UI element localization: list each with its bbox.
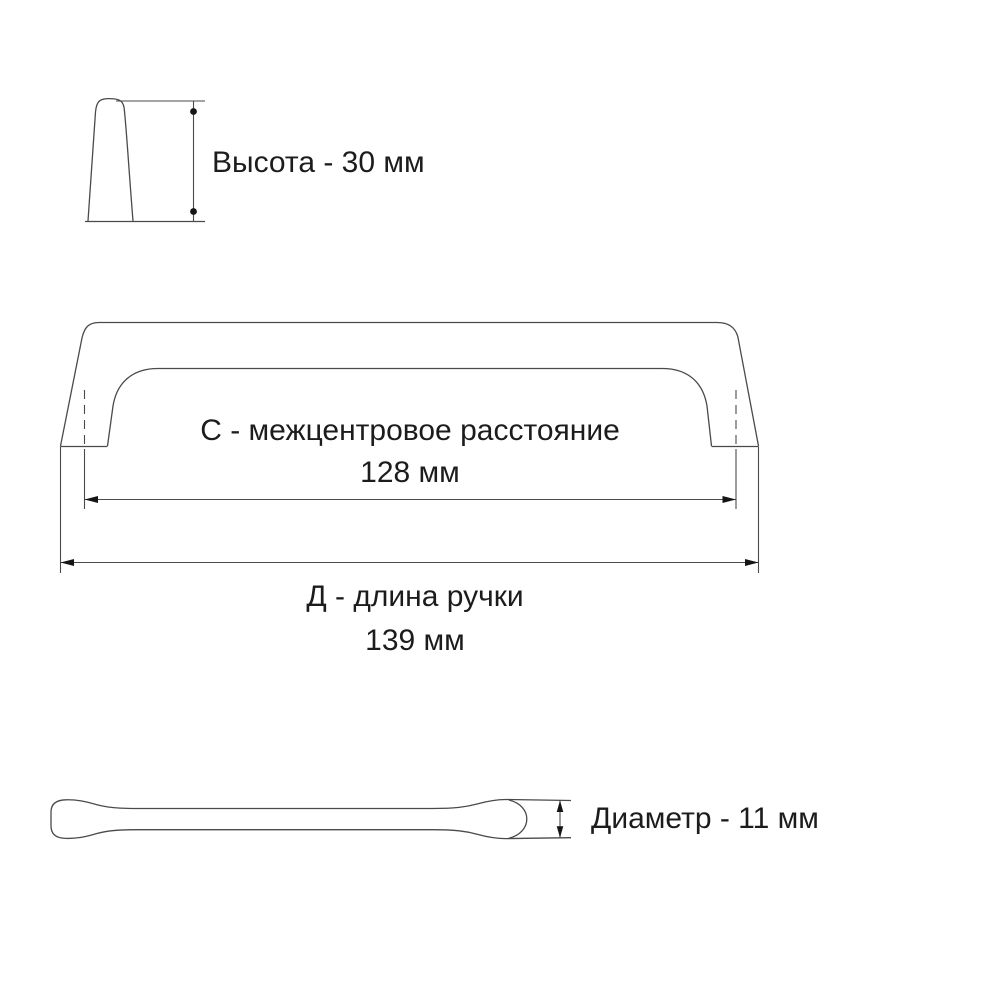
handle-top-outline: [51, 800, 571, 839]
top-view-handle: [51, 800, 571, 839]
handle-dimensions-diagram: Высота - 30 мм С - межцентровое расстоян…: [0, 0, 1000, 1000]
center-arrow-left: [85, 496, 99, 503]
center-distance-title-label: С - межцентровое расстояние: [105, 412, 715, 450]
length-arrow-left: [61, 559, 75, 566]
diameter-dimension: [557, 801, 564, 838]
handle-end-cap-arc: [509, 800, 527, 838]
diameter-arrow-bottom: [557, 826, 564, 838]
height-arrow-bottom: [190, 208, 197, 215]
center-distance-value-label: 128 мм: [105, 454, 715, 492]
length-title-label: Д - длина ручки: [110, 578, 720, 616]
height-arrow-top: [190, 108, 197, 115]
center-arrow-right: [723, 496, 737, 503]
diameter-arrow-top: [557, 801, 564, 813]
side-view-foot: [85, 99, 205, 222]
technical-drawing: [0, 0, 1000, 1000]
diameter-label: Диаметр - 11 мм: [591, 800, 819, 838]
height-label: Высота - 30 мм: [212, 144, 425, 182]
length-value-label: 139 мм: [110, 622, 720, 660]
height-dimension: [116, 101, 205, 222]
foot-outline: [88, 99, 133, 221]
length-arrow-right: [745, 559, 759, 566]
